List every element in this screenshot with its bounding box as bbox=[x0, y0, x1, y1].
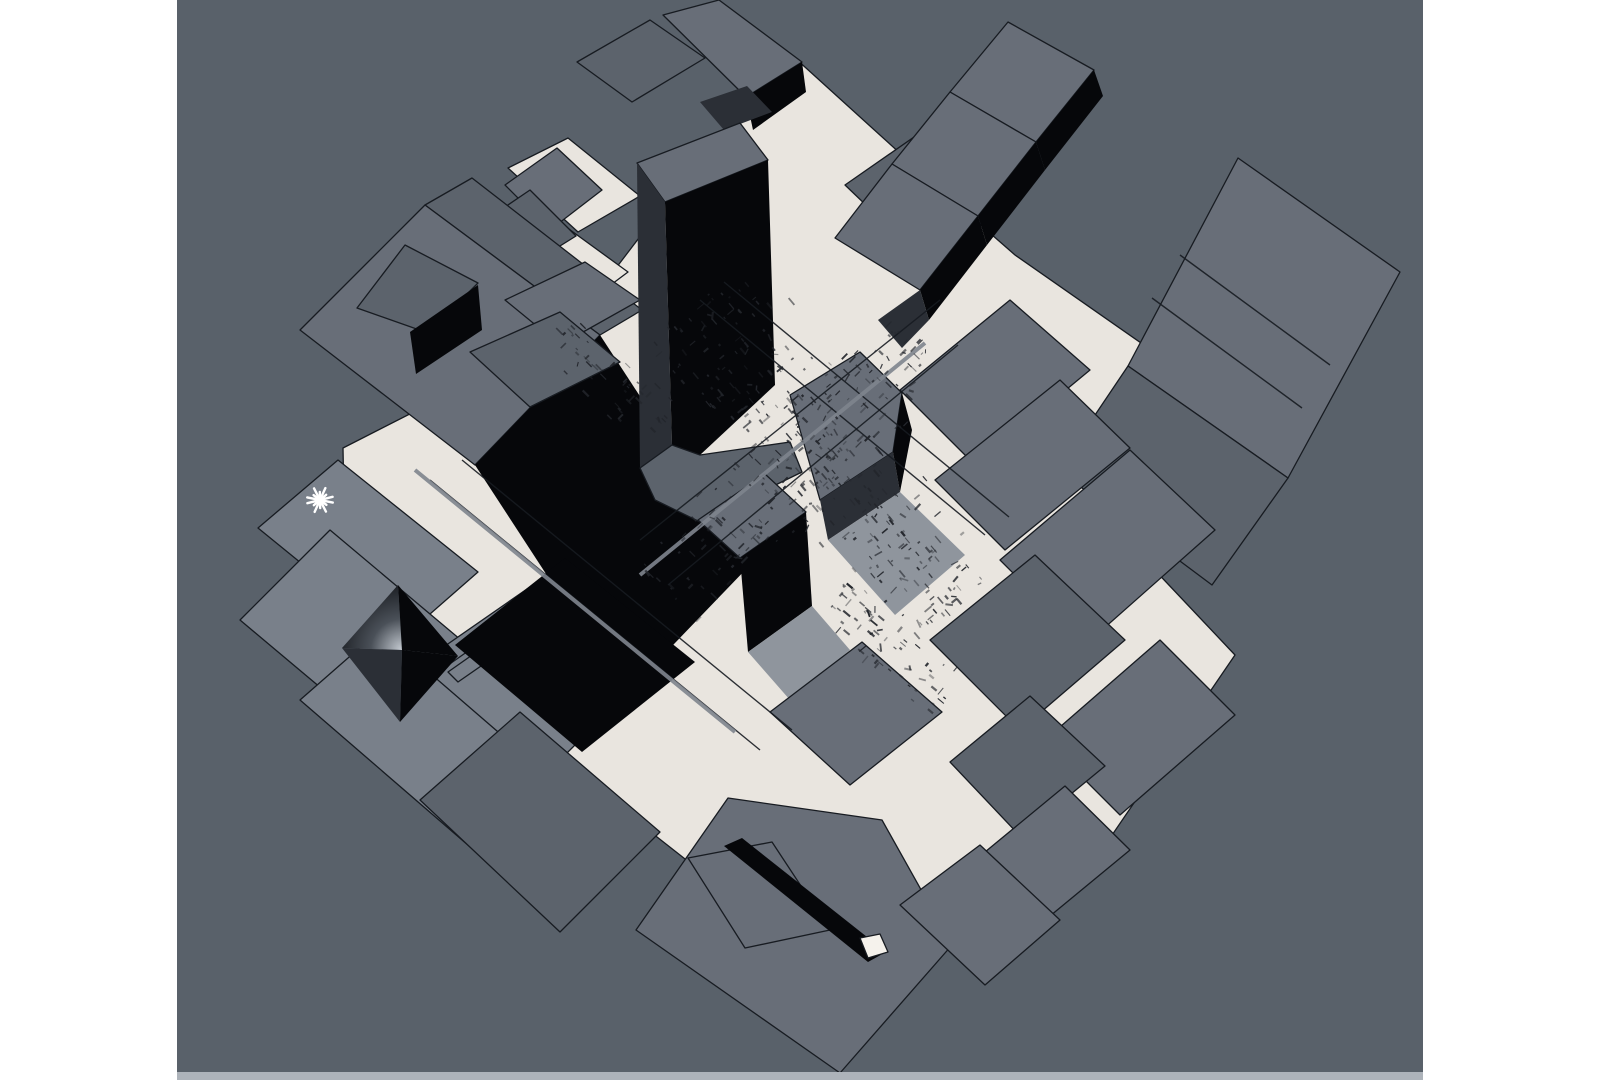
render-window bbox=[0, 0, 1599, 1080]
viewport-bottom-strip bbox=[177, 1072, 1423, 1080]
viewport-3d[interactable] bbox=[0, 0, 1599, 1080]
